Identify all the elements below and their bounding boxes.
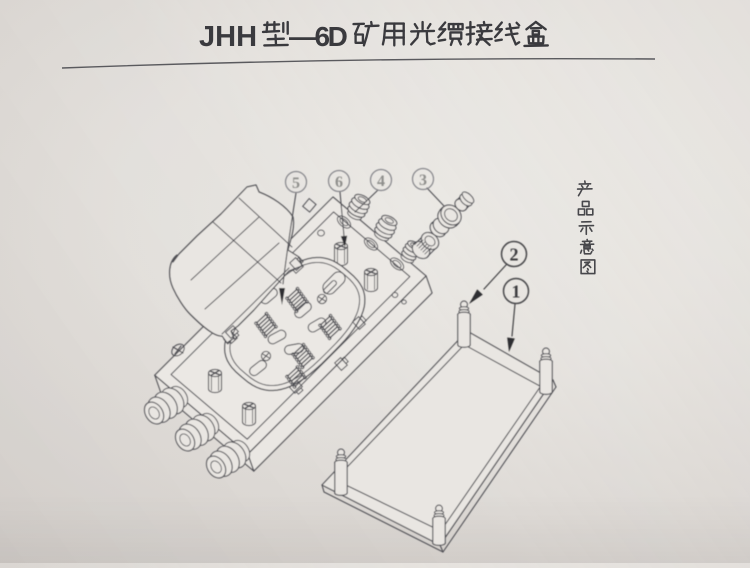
svg-text:6: 6 <box>335 174 343 191</box>
svg-text:2: 2 <box>510 244 519 264</box>
svg-text:5: 5 <box>292 175 300 192</box>
svg-text:—6D: —6D <box>289 21 348 52</box>
svg-text:3: 3 <box>419 172 427 189</box>
svg-text:JHH: JHH <box>199 21 257 53</box>
svg-text:1: 1 <box>512 281 521 301</box>
svg-text:4: 4 <box>377 173 385 190</box>
